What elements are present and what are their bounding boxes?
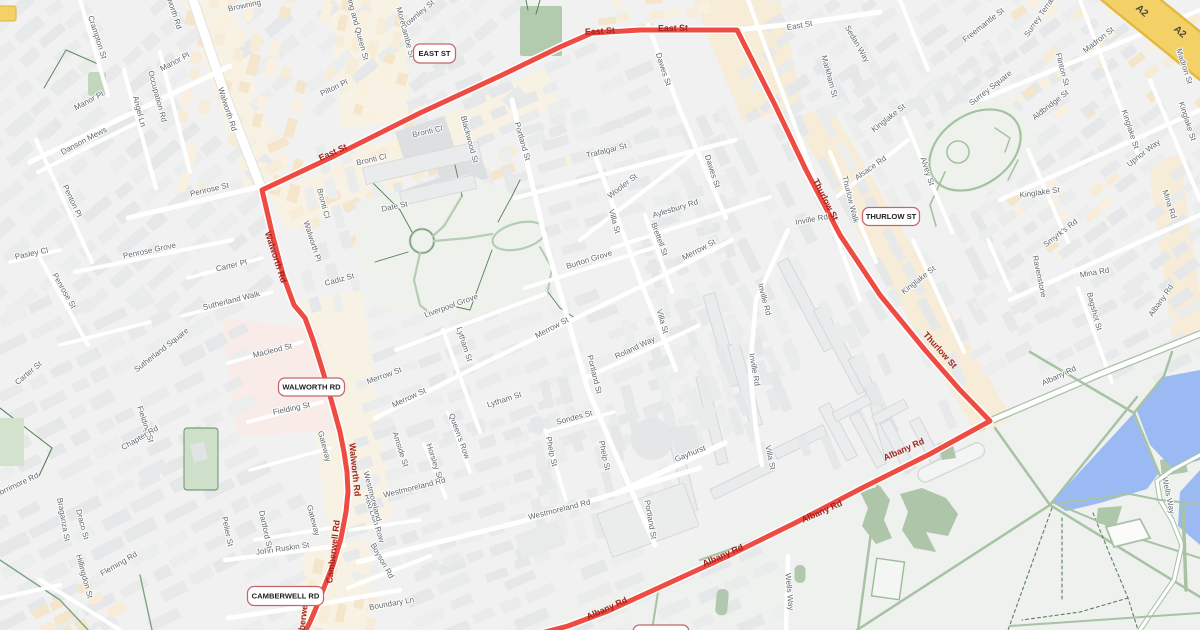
svg-text:THURLOW ST: THURLOW ST — [866, 212, 917, 221]
svg-text:East St: East St — [658, 23, 688, 34]
svg-text:CAMBERWELL RD: CAMBERWELL RD — [252, 592, 320, 601]
svg-text:WALWORTH RD: WALWORTH RD — [282, 383, 341, 392]
svg-text:East St: East St — [585, 25, 615, 37]
svg-text:EAST ST: EAST ST — [418, 49, 450, 58]
